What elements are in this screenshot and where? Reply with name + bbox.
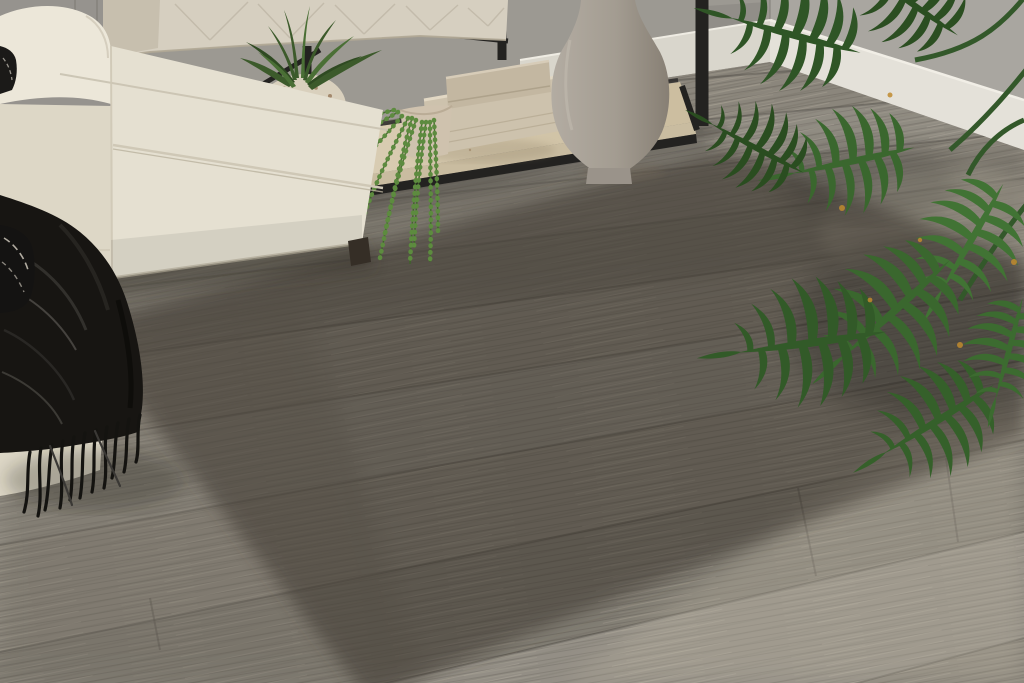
furniture-layer bbox=[0, 0, 1024, 683]
sofa-arm-bolster bbox=[0, 6, 111, 104]
sofa-leg bbox=[348, 237, 371, 266]
living-room-scene bbox=[0, 0, 1024, 683]
